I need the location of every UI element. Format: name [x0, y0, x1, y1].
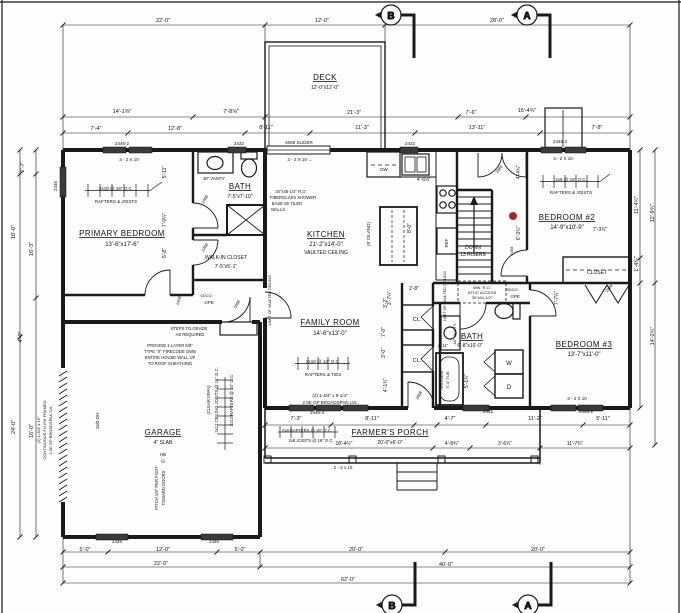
annotation-label: 4'-8¾"	[445, 441, 459, 447]
annotation-label: HB	[160, 452, 166, 457]
annotation-label: 18'-4½"	[336, 440, 353, 447]
annotation-label: BASE W/ TILED	[272, 201, 302, 206]
garage-landing	[220, 322, 257, 335]
annotation-label: 3'-6¾"	[498, 441, 512, 447]
annotation-label: 2468	[200, 193, 209, 204]
annotation-label: 5'-0"	[235, 547, 246, 553]
annotation-label: 5'-8"	[162, 248, 168, 258]
annotation-label: 4'-4¾"	[516, 165, 522, 179]
annotation-label: ⊙PE	[204, 300, 214, 305]
annotation-label: 2446-2	[579, 409, 594, 414]
annotation-label: (2) 1-3/4" x 16"	[36, 416, 41, 443]
annotation-label: D	[507, 385, 512, 391]
svg-text:B: B	[388, 601, 395, 612]
annotation-label: 3 - 2 X 10	[567, 396, 587, 401]
annotation-label: REF	[444, 238, 449, 247]
annotation-label: 5'-0"	[80, 547, 91, 553]
annotation-label: 22'-0"	[154, 561, 168, 567]
floor-plan-sheet: DECK 12'-0"x12'-0" PRIMARY BEDROOM 13'-6…	[0, 0, 681, 613]
annotation-label: 6'-3¾"	[516, 226, 522, 240]
stairs-label-risers: 13 RISERS	[460, 252, 486, 258]
annotation-label: 30"x54-1/2"	[472, 295, 493, 300]
annotation-label: (2) 1-3/4" x 9-1/4"	[312, 393, 348, 398]
room-label-deck: DECK	[313, 73, 337, 82]
red-marker-dot	[509, 212, 517, 220]
annotation-label: 40'-0"	[439, 562, 453, 568]
sheet-border	[0, 0, 681, 613]
annotation-label: 2x10 @ 16" O.C.	[99, 186, 133, 191]
annotation-label: CL.	[413, 317, 422, 323]
annotation-label: 62'-0"	[341, 577, 355, 583]
annotation-label: 8'-11"	[259, 125, 273, 131]
annotation-label: 2432	[234, 141, 245, 146]
kitchen-island	[380, 207, 417, 265]
annotation-label: 14'-1⅜"	[113, 109, 132, 115]
annotation-label: 21'-3"	[347, 110, 361, 116]
annotation-label: 18'-0"	[11, 225, 17, 239]
annotation-label: CONTINUOUS FLUSH FRAMED	[42, 400, 47, 459]
annotation-label: WALLS	[271, 207, 285, 212]
annotation-label: 2 - 2 x 10	[334, 465, 353, 470]
dimension-labels: 22'-0"12'-0"28'-0"14'-1⅜"7'-8⅝"21'-3"7'-…	[11, 18, 656, 583]
annotation-label: 7'-4"	[91, 126, 102, 132]
annotation-label: 28'-0"	[490, 18, 504, 24]
room-note-kitchen: VAULTED CEILING	[304, 250, 348, 256]
section-marker-a-top: A	[512, 5, 550, 58]
annotation-label: DW	[380, 167, 388, 172]
room-label-bedroom3: BEDROOM #3	[556, 340, 613, 349]
room-label-closet2: CLOSET	[587, 270, 607, 276]
annotation-label: PITCH 1/8" PER FOOT	[154, 466, 159, 510]
annotation-label: 2'-8"	[409, 286, 419, 292]
annotation-label: (8' ISLAND)	[366, 222, 371, 246]
annotation-label: TOWARD DOORS	[161, 470, 166, 505]
annotation-label: 5'-0" TUB	[445, 371, 450, 388]
annotation-label: 1'-4¾"	[634, 256, 640, 272]
annotation-label: 16'-0"	[29, 424, 35, 438]
annotation-label: SDCO	[506, 287, 518, 292]
room-label-porch: FARMER'S PORCH	[352, 428, 429, 437]
annotation-label: 22'-0"	[156, 18, 170, 24]
room-dims-bath1: 7'-5"x7'-10"	[227, 194, 252, 200]
annotation-label: ENTIRE HOUSE WALL UP	[145, 355, 196, 360]
annotation-label: 2446-2	[115, 141, 130, 146]
svg-text:B: B	[387, 11, 394, 22]
annotation-label: 3068	[232, 298, 241, 309]
annotation-label: PROVIDE 1 LAYER 5/8"	[147, 343, 193, 348]
annotation-label: 2446	[209, 539, 220, 544]
room-label-walkin: WALK-IN CLOSET	[205, 255, 247, 261]
room-label-bath2: BATH	[461, 332, 483, 341]
annotation-label: 2x12 CEILING JOISTS @ 16" O.C.	[214, 367, 219, 432]
annotation-label: 20'-0"	[531, 547, 545, 553]
annotation-label: 5'-1¾"	[464, 374, 470, 388]
annotation-label: 5'-11"	[162, 166, 168, 179]
room-dims-bath2: 6'-8"x10'-0"	[457, 343, 482, 349]
annotation-label: 2868	[414, 389, 423, 400]
annotation-label: SDCO	[200, 293, 212, 298]
room-label-family-room: FAMILY ROOM	[300, 318, 359, 327]
annotation-label: 3'-0"	[381, 348, 387, 358]
annotation-label: CL.	[413, 358, 422, 364]
annotation-label: 2x12 RAFTERS @ 16" O.C.	[229, 374, 234, 426]
annotation-label: 2468	[200, 241, 209, 252]
annotation-label: 11'-2"	[528, 416, 542, 422]
annotation-label: ⊙PE	[510, 294, 520, 299]
annotation-label: 2x6 @ 16" O.C.	[555, 177, 586, 182]
annotation-label: 2468	[175, 295, 182, 306]
annotation-label: 7'-8"	[592, 125, 603, 131]
toilet-1-bowl	[242, 159, 257, 177]
windows	[60, 147, 603, 540]
floor-plan-drawing: DECK 12'-0"x12'-0" PRIMARY BEDROOM 13'-6…	[0, 0, 681, 613]
toilet-2-bowl	[495, 304, 513, 319]
room-label-bath1: BATH	[229, 182, 251, 191]
svg-text:A: A	[524, 601, 531, 612]
annotation-label: RAFTERS & JOISTS	[550, 190, 592, 195]
room-label-garage: GARAGE	[145, 428, 182, 437]
room-dims-garage: 4" SLAB	[154, 440, 173, 446]
annotation-label: TO ROOF SHEATHING	[148, 361, 192, 366]
room-dims-bedroom3: 13'-7"x11'-0"	[567, 352, 600, 358]
annotation-label: 16/0 DH	[95, 413, 100, 430]
annotation-label: 12'-0"	[156, 547, 170, 553]
annotation-label: ⊙	[161, 459, 165, 465]
annotation-label: 12'-8"	[168, 126, 182, 132]
annotation-label: 7'-7¼"	[554, 291, 560, 305]
room-dims-bedroom2: 14'-9"x10'-9"	[550, 225, 584, 231]
annotation-label: 4'-1¾"	[383, 378, 389, 392]
annotation-label: AS REQUIRED	[176, 332, 205, 337]
deck-outline	[265, 42, 385, 150]
annotation-label: (CLEAR SPAN)	[206, 385, 211, 415]
annotation-label: 7'-0¼"	[162, 213, 168, 227]
section-marker-b-bottom: B	[377, 562, 415, 613]
annotation-label: 6068 SLIDER	[285, 140, 313, 145]
annotation-label: 14'-2¾"	[650, 327, 656, 346]
annotation-label: RAFTERS & JOISTS	[95, 199, 137, 204]
annotation-label: 7'-8⅝"	[223, 109, 239, 115]
room-label-primary-bedroom: PRIMARY BEDROOM	[79, 229, 165, 238]
annotation-label: 8'-0"	[407, 223, 413, 233]
annotation-label: STEPS TO GRADE	[171, 326, 208, 331]
room-dims-primary-bedroom: 13'-6"x17'-6"	[105, 242, 139, 248]
annotation-label: 2x6 JOISTS @ 16" O.C.	[288, 438, 333, 443]
annotation-label: 2668	[494, 163, 504, 174]
annotation-label: 2.0E GP BROADSPAN LVL	[302, 400, 358, 405]
annotation-label: SHOWER/	[439, 370, 444, 390]
annotation-label: 7'-0"	[381, 327, 387, 337]
annotation-label: 20'-0"	[349, 547, 363, 553]
decor	[18, 23, 658, 586]
annotation-label: 8'-11"	[365, 416, 379, 422]
dishwasher	[367, 152, 400, 177]
annotation-label: LIMIT OF VAULTED CEILING	[443, 271, 447, 321]
room-dims-porch: 20'-0"x6'-0"	[377, 440, 402, 446]
annotation-label: 11'-3"	[355, 125, 369, 131]
annotation-label: 2.0E GP BROADSPAN LVL	[48, 405, 53, 455]
annotation-label: 2x8 RAFTERS @ 16" O.C.	[282, 428, 332, 433]
section-marker-b-top: B	[376, 5, 414, 58]
toilet-2-tank	[513, 303, 520, 319]
annotation-label: 2446-3	[310, 410, 325, 415]
annotation-label: 2x10 @ 12" O.C.	[306, 359, 340, 364]
annotation-label: 2446	[483, 409, 494, 414]
annotation-label: 4'-7"	[445, 416, 456, 422]
annotation-label: 5'-11"	[596, 416, 610, 422]
annotation-label: 4'-6½"	[417, 176, 431, 183]
annotation-label: 48" VANITY	[203, 176, 225, 181]
annotation-label: 7'-6"	[466, 110, 477, 116]
annotation-label: 3 - 2 X 10	[553, 156, 573, 161]
annotation-label: 2432	[405, 141, 416, 146]
annotation-label: W	[506, 361, 512, 367]
annotation-label: 3'-2"	[383, 298, 389, 308]
annotation-label: 48" VANITY	[452, 323, 457, 344]
section-marker-a-bottom: A	[513, 562, 551, 613]
room-dims-family-room: 14'-6"x13'-0"	[313, 331, 347, 337]
room-dims-kitchen: 21'-2"x14'-0"	[309, 242, 343, 248]
annotation-label: 7'-3"	[291, 416, 302, 422]
annotation-label: 4'-0"	[18, 331, 24, 342]
annotation-label: 11'-7¾"	[567, 441, 584, 447]
annotation-label: 3 - 2 X 10	[119, 157, 139, 162]
annotation-label: RAFTERS & TIES	[305, 372, 341, 377]
annotation-label: FIBERGLASS SHOWER	[270, 195, 316, 200]
annotation-label: 2446-2	[553, 139, 568, 144]
room-dims-deck: 12'-0"x12'-0"	[311, 85, 339, 91]
svg-text:A: A	[523, 11, 530, 22]
annotation-label: 24'-0"	[11, 420, 17, 434]
room-label-bedroom2: BEDROOM #2	[539, 213, 596, 222]
annotation-label: 2'-11"	[438, 343, 449, 348]
annotation-label: 11'-4¾"	[634, 196, 640, 214]
annotation-label: 3 - 2 X 10 ←	[287, 157, 312, 162]
annotation-label: TYPE "X" FIRECODE GWB	[144, 349, 196, 354]
annotation-label: 2468	[509, 246, 514, 256]
annotation-label: LIMIT OF VAULTED CEILING	[268, 275, 272, 325]
annotation-label: 2446	[112, 539, 123, 544]
stairs-label-down: DOWN	[465, 245, 481, 251]
room-dims-walkin: 7'-5"x5'-1"	[215, 264, 238, 270]
annotation-label: 2446	[53, 180, 58, 191]
annotation-label: 12'-9¾"	[650, 204, 656, 223]
annotation-label: 2'-7"	[20, 161, 26, 172]
annotation-label: 12'-0"	[315, 18, 329, 24]
annotation-label: 15'-4¾"	[518, 108, 537, 114]
annotation-label: 16'-3"	[29, 242, 35, 256]
room-label-kitchen: KITCHEN	[307, 230, 345, 239]
annotation-label: 13'-11"	[469, 125, 486, 131]
room-labels: DECK 12'-0"x12'-0" PRIMARY BEDROOM 13'-6…	[79, 73, 612, 446]
sink-1	[207, 157, 223, 170]
annotation-label: 7'-3¾"	[593, 227, 607, 233]
porch-steps	[397, 463, 437, 490]
annotation-label: 34"x48-1/4" R.O.	[275, 189, 306, 194]
